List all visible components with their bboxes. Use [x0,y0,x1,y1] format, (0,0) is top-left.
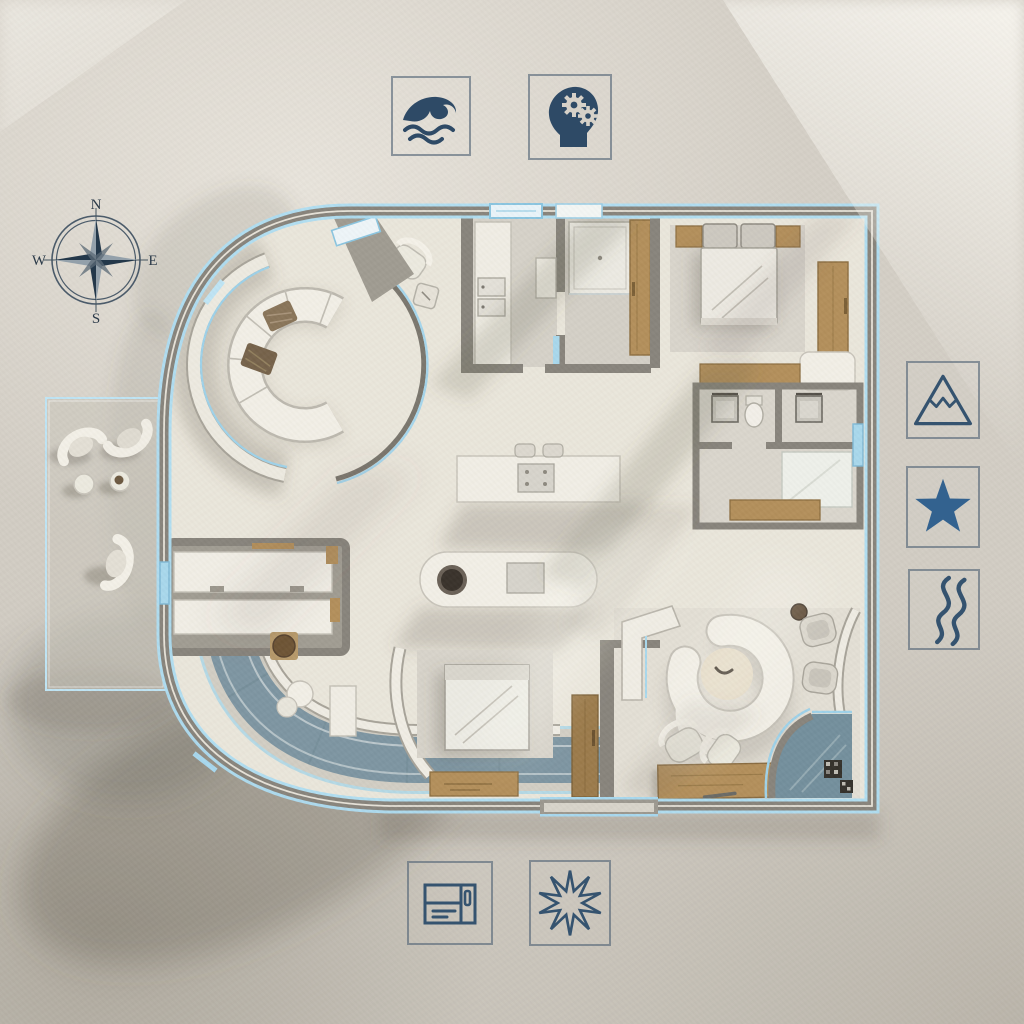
toilet [745,396,763,427]
towel-rail [553,336,560,364]
compass-needle [54,218,138,302]
hall-console [330,686,356,736]
lounge-side-table [413,283,440,310]
compass-rose: N E S W [30,196,162,328]
window [853,424,863,466]
starburst-icon [529,860,611,946]
cabinet-layout-icon [407,861,493,945]
bedroom-wardrobe [818,262,848,357]
nightstand [676,226,702,247]
mountain-peak-icon [906,361,980,439]
five-point-star-icon [906,466,980,548]
stool [543,444,563,457]
rear-door-step [540,797,658,817]
compass-label-east: E [148,253,157,269]
bathroom-sink [796,394,822,422]
wardrobe [572,695,598,797]
compass-label-west: W [32,253,47,269]
floor-plan-render [0,0,1024,1024]
patio [7,398,177,732]
armchair [801,661,839,695]
cooktop [518,464,554,492]
pillow [703,224,737,248]
window [556,204,602,218]
ocean-wave-icon [391,76,471,156]
head-with-gears-icon [528,74,612,160]
winding-river-icon [908,569,980,650]
compass-label-north: N [91,197,102,213]
bed-bench [430,772,518,796]
bath-bench [730,500,820,520]
hall-table [270,632,298,660]
pillow [741,224,775,248]
prep-sink [507,563,544,593]
round-basin [441,569,463,591]
compass-label-south: S [92,311,100,327]
window [160,562,169,604]
stool [515,444,535,457]
gear-small [578,106,598,126]
